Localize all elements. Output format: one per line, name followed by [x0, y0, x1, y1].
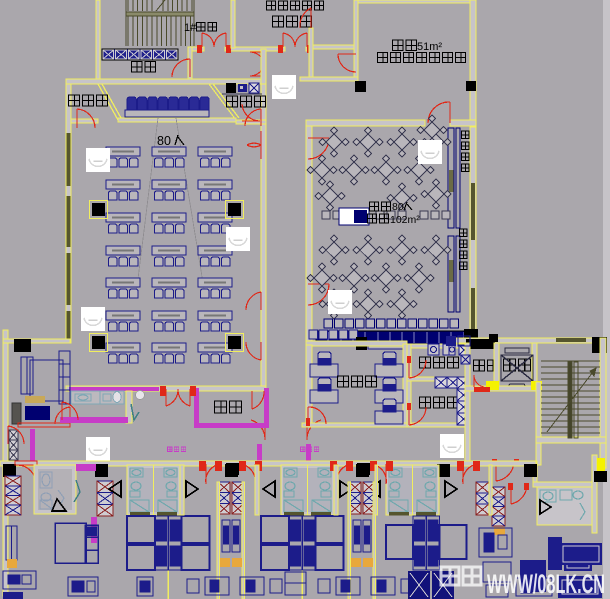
svg-text:WWW/08LK.CN: WWW/08LK.CN [487, 569, 605, 599]
svg-text:80: 80 [392, 201, 404, 213]
svg-text:102m²: 102m² [390, 214, 420, 226]
svg-text:1#: 1# [184, 22, 197, 34]
svg-text:51m²: 51m² [417, 41, 442, 53]
svg-text:80: 80 [157, 134, 171, 148]
